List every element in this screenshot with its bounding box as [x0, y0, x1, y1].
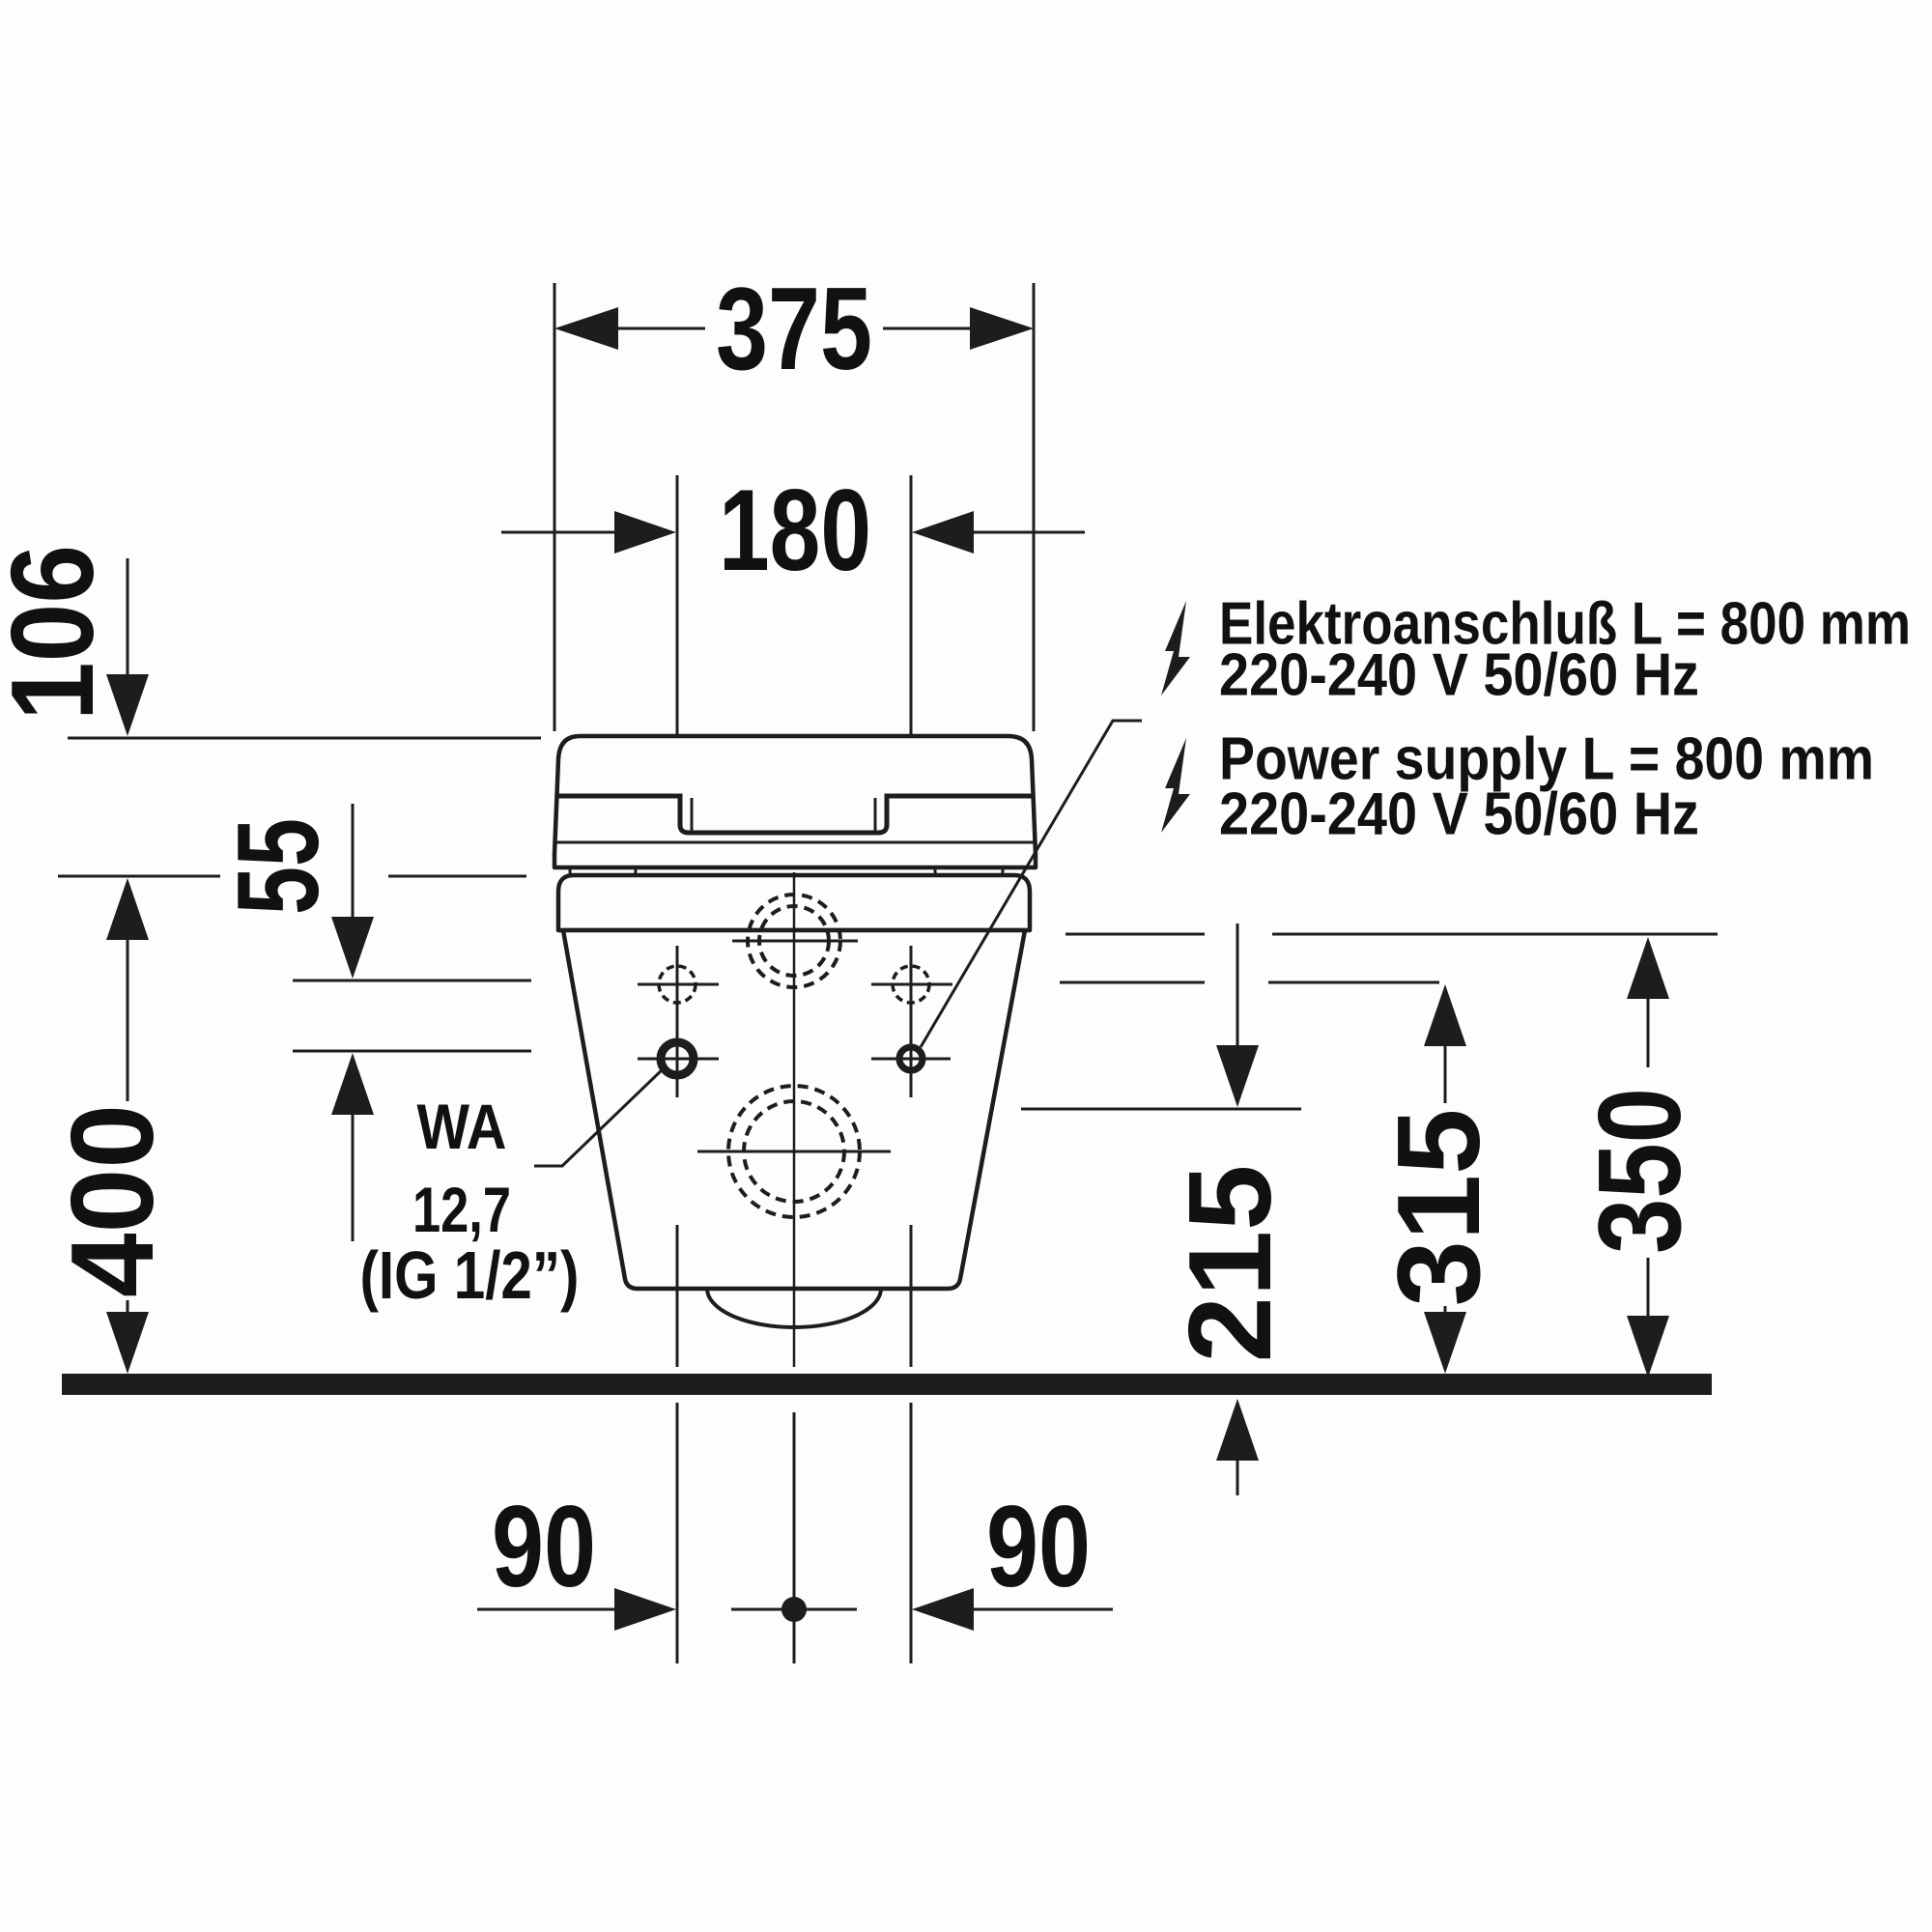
- dim-label-375: 375: [716, 263, 872, 394]
- electrical-en-line2: 220-240 V 50/60 Hz: [1219, 781, 1699, 848]
- arrow-down-icon: [1627, 1316, 1669, 1378]
- dim-label-106: 106: [0, 545, 118, 721]
- arrow-down-icon: [106, 1312, 149, 1374]
- dim-180: 180: [501, 466, 1085, 595]
- seat-lid-outline: [554, 736, 1036, 867]
- installation-diagram: 375 180 106 400 55 215: [0, 0, 1932, 1932]
- toilet-seat-assembly: [554, 736, 1036, 877]
- arrow-down-icon: [1216, 1045, 1259, 1107]
- arrow-down-icon: [1424, 1312, 1466, 1374]
- arrow-up-icon: [1216, 1399, 1259, 1461]
- dim-label-315: 315: [1373, 1109, 1504, 1307]
- water-note-line2: 12,7: [412, 1174, 511, 1245]
- water-note-line1: WA: [417, 1091, 507, 1162]
- dim-55: 55: [213, 804, 374, 1241]
- arrow-up-icon: [1627, 937, 1669, 999]
- arrow-right-icon: [614, 511, 676, 554]
- arrow-left-icon: [912, 511, 974, 554]
- dim-label-400: 400: [46, 1104, 178, 1297]
- arrow-right-icon: [970, 307, 1034, 350]
- dim-106: 106: [0, 545, 149, 736]
- lightning-icon: [1161, 738, 1190, 833]
- dim-90-right: 90: [912, 1482, 1113, 1631]
- lightning-icon: [1161, 601, 1190, 696]
- dim-label-90-right: 90: [986, 1482, 1091, 1611]
- arrow-left-icon: [554, 307, 618, 350]
- floor-line: [62, 1374, 1712, 1395]
- dim-label-350: 350: [1574, 1088, 1705, 1254]
- below-floor-marks: [677, 1403, 911, 1663]
- dim-375: 375: [554, 263, 1034, 394]
- water-note-line3: (IG 1/2”): [360, 1237, 580, 1313]
- toilet-bowl: [558, 872, 1030, 1367]
- electrical-de-line2: 220-240 V 50/60 Hz: [1219, 642, 1699, 709]
- dim-315: 315: [1373, 984, 1504, 1374]
- arrow-up-icon: [106, 878, 149, 940]
- dim-400: 400: [46, 878, 178, 1374]
- dim-label-90-left: 90: [492, 1482, 596, 1611]
- dim-215: 215: [1164, 923, 1295, 1495]
- dim-90-left: 90: [477, 1482, 676, 1631]
- dim-label-55: 55: [213, 818, 343, 915]
- arrow-left-icon: [912, 1588, 974, 1631]
- dim-label-215: 215: [1164, 1165, 1295, 1363]
- dim-label-180: 180: [719, 466, 871, 595]
- arrow-right-icon: [614, 1588, 676, 1631]
- arrow-up-icon: [331, 1053, 374, 1115]
- arrow-up-icon: [1424, 984, 1466, 1046]
- dim-350: 350: [1574, 937, 1705, 1378]
- center-point-dot: [781, 1597, 807, 1622]
- drawing-canvas: 375 180 106 400 55 215: [0, 0, 1932, 1932]
- electrical-note: Elektroanschluß L = 800 mm 220-240 V 50/…: [921, 591, 1911, 1048]
- arrow-down-icon: [331, 917, 374, 979]
